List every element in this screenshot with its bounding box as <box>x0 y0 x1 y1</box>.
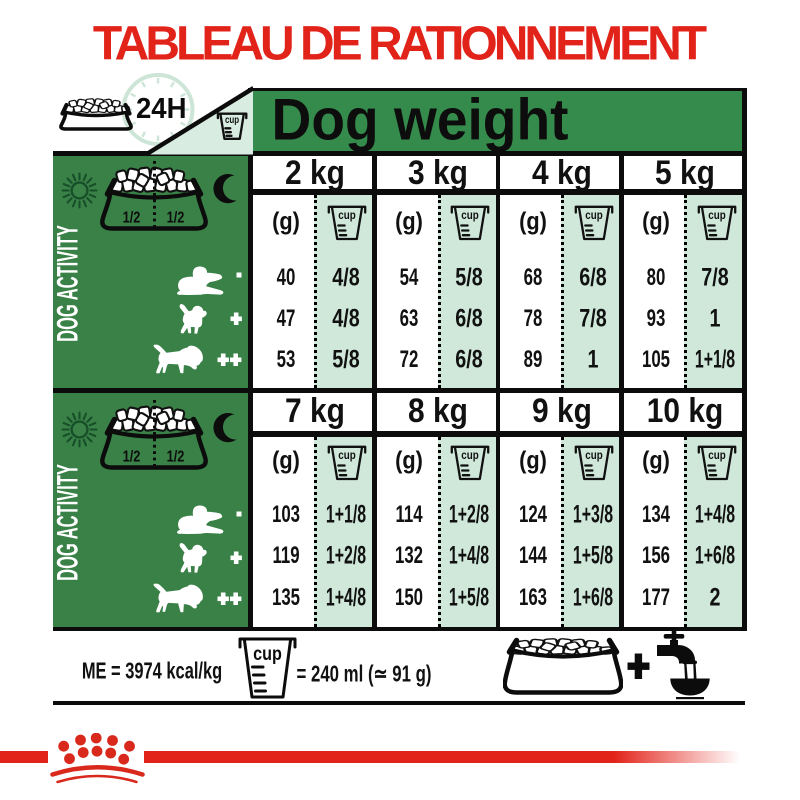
svg-text:cup: cup <box>225 114 240 125</box>
svg-text:24H: 24H <box>136 91 187 124</box>
svg-text:cup: cup <box>253 643 282 665</box>
